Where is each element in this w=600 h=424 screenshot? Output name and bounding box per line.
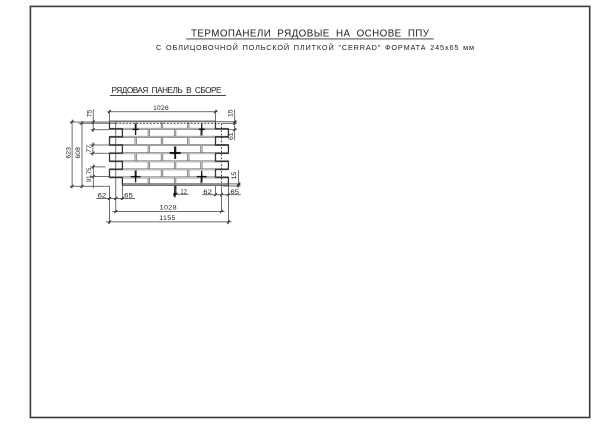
svg-text:608: 608 (75, 146, 82, 158)
svg-text:75: 75 (86, 109, 93, 117)
svg-text:12: 12 (181, 188, 188, 195)
svg-text:1155: 1155 (159, 215, 176, 222)
svg-text:623: 623 (65, 146, 72, 158)
svg-text:15: 15 (228, 109, 235, 117)
svg-text:62: 62 (98, 193, 107, 200)
svg-text:1028: 1028 (160, 204, 178, 211)
svg-text:С ОБЛИЦОВОЧНОЙ ПОЛЬСКОЙ ПЛИТКО: С ОБЛИЦОВОЧНОЙ ПОЛЬСКОЙ ПЛИТКОЙ "CERRAD"… (156, 43, 474, 52)
svg-text:15: 15 (231, 171, 238, 179)
svg-text:65: 65 (231, 189, 240, 196)
svg-text:65: 65 (124, 193, 133, 200)
svg-text:61: 61 (228, 132, 235, 140)
svg-text:77: 77 (86, 144, 93, 152)
svg-text:1026: 1026 (153, 105, 169, 112)
svg-text:91,75: 91,75 (86, 167, 93, 182)
svg-text:РЯДОВАЯ ПАНЕЛЬ В СБОРЕ: РЯДОВАЯ ПАНЕЛЬ В СБОРЕ (112, 86, 223, 95)
svg-text:ТЕРМОПАНЕЛИ РЯДОВЫЕ НА ОСНОВЕ: ТЕРМОПАНЕЛИ РЯДОВЫЕ НА ОСНОВЕ ППУ (191, 28, 430, 39)
svg-text:62: 62 (203, 189, 212, 196)
